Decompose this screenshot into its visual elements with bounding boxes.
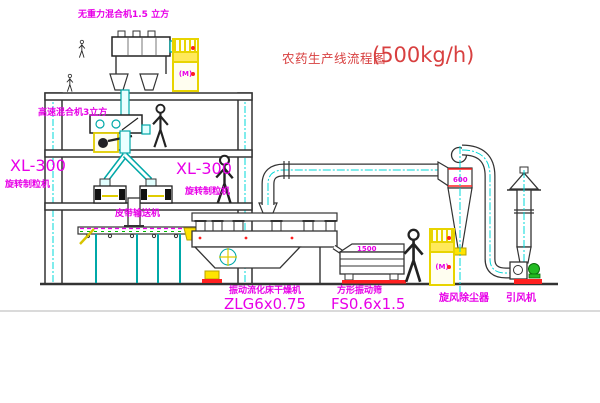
indicator-light <box>447 265 451 269</box>
hopper-left <box>110 74 128 90</box>
mixer-outlet <box>142 125 150 134</box>
feed-pipe <box>121 90 129 116</box>
annotation-sifter-dim: 1500 <box>357 246 376 253</box>
person-figure <box>67 74 73 91</box>
person-figure <box>79 40 85 57</box>
label-fan: 引风机 <box>506 294 536 304</box>
label-granulator-right-name: 旋转制粒机 <box>185 188 230 197</box>
label-granulator-left-name: 旋转制粒机 <box>5 181 50 190</box>
hopper-right <box>140 74 158 90</box>
label-granulator-right-model: XL-300 <box>176 161 232 177</box>
exhaust-duct <box>259 161 450 213</box>
fluid-bed-dryer <box>184 213 337 283</box>
motor <box>98 138 108 148</box>
label-sifter-model: FS0.6x1.5 <box>331 297 405 312</box>
label-high-speed-mixer: 高速混合机3立方 <box>38 109 107 118</box>
dryer-hopper <box>195 247 300 268</box>
spring-mount <box>205 271 219 279</box>
belt-conveyor <box>78 227 200 283</box>
granulator-right-unit <box>140 179 172 203</box>
label-weightless-mixer: 无重力混合机1.5 立方 <box>78 11 169 20</box>
cad-flow-diagram: (M) (M) 农药生产线流程图 (500kg/h) 无重力混合机1.5 立方 … <box>0 0 600 403</box>
indicator-light <box>191 46 195 50</box>
granulator-left-unit <box>94 179 126 203</box>
diagram-capacity: (500kg/h) <box>372 45 474 66</box>
control-cabinet-upper: (M) <box>172 38 199 92</box>
induced-draft-fan <box>510 262 542 284</box>
cabinet-panel <box>431 243 453 253</box>
label-cyclone: 旋风除尘器 <box>439 294 489 304</box>
fan-motor <box>529 264 540 275</box>
indicator-light <box>191 72 195 76</box>
dryer-nozzles <box>195 221 337 231</box>
label-belt-conveyor: 皮带输送机 <box>115 210 160 219</box>
person-figure <box>404 230 422 282</box>
cabinet-panel <box>174 53 197 63</box>
label-dryer-model: ZLG6x0.75 <box>224 297 306 312</box>
label-granulator-left-model: XL-300 <box>10 158 66 174</box>
annotation-cyclone-dim: 600 <box>453 177 468 184</box>
diagram-title: 农药生产线流程图 <box>282 53 386 66</box>
indicator-light <box>447 236 451 240</box>
person-figure <box>153 105 168 148</box>
control-cabinet-ground: (M) <box>429 228 455 286</box>
